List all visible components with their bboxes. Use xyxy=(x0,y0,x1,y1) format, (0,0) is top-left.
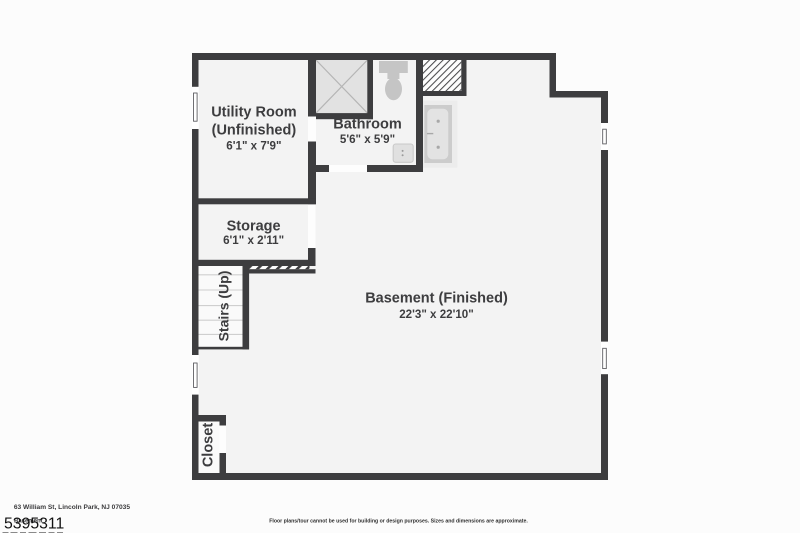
svg-text:5'6" x 5'9": 5'6" x 5'9" xyxy=(340,133,395,146)
svg-text:6'1" x 7'9": 6'1" x 7'9" xyxy=(226,140,281,153)
svg-text:Utility Room: Utility Room xyxy=(211,105,296,121)
svg-text:Storage: Storage xyxy=(227,218,281,234)
svg-text:Basement (Finished): Basement (Finished) xyxy=(365,291,508,307)
svg-text:5395311: 5395311 xyxy=(4,516,65,533)
svg-text:6'1" x 2'11": 6'1" x 2'11" xyxy=(223,234,284,247)
svg-text:63 William St, Lincoln Park, N: 63 William St, Lincoln Park, NJ 07035 xyxy=(14,504,130,511)
svg-text:(Unfinished): (Unfinished) xyxy=(212,123,297,139)
svg-text:Floor plans/tour cannot be use: Floor plans/tour cannot be used for buil… xyxy=(269,518,528,524)
svg-text:22'3" x 22'10": 22'3" x 22'10" xyxy=(399,308,474,321)
svg-text:Bathroom: Bathroom xyxy=(333,117,401,133)
svg-text:Stairs (Up): Stairs (Up) xyxy=(215,271,231,342)
svg-text:Closet: Closet xyxy=(201,423,217,467)
